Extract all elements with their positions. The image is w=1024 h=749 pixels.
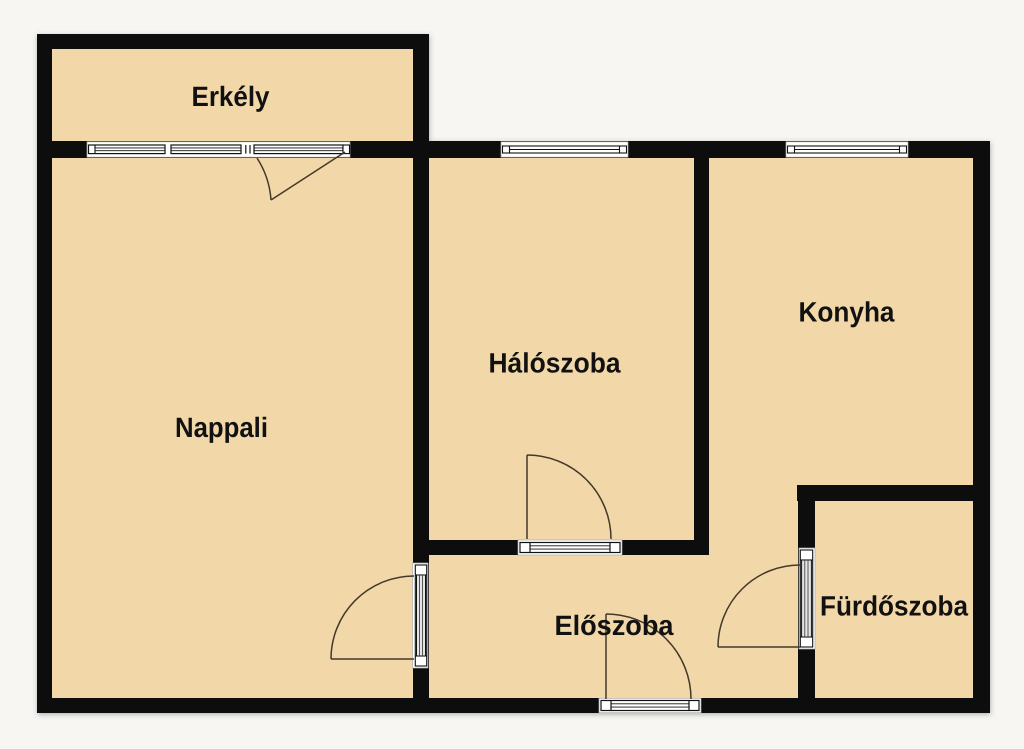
svg-text:Előszoba: Előszoba bbox=[555, 610, 674, 641]
svg-text:Konyha: Konyha bbox=[799, 297, 895, 328]
svg-text:Erkély: Erkély bbox=[192, 81, 270, 112]
svg-text:Hálószoba: Hálószoba bbox=[489, 348, 621, 379]
svg-text:Nappali: Nappali bbox=[175, 412, 268, 443]
svg-text:Fürdőszoba: Fürdőszoba bbox=[820, 591, 968, 622]
